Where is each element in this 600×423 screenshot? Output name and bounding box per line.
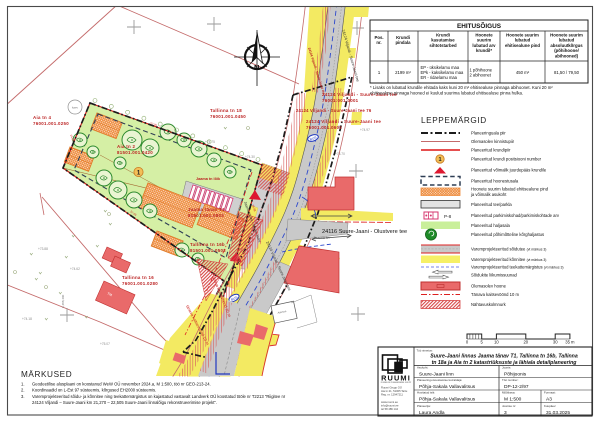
svg-text:ja võimalik asukoht: ja võimalik asukoht (470, 192, 507, 197)
svg-text:* Lisaks on lubatud krundile e: * Lisaks on lubatud krundile ehitada kak… (370, 85, 553, 90)
svg-text:Planeeritud krundi positsiooni: Planeeritud krundi positsiooni number (471, 157, 542, 162)
svg-text:Olemasolev kinnistupiir: Olemasolev kinnistupiir (471, 139, 515, 144)
svg-text:Sõidukite liikumissuunad: Sõidukite liikumissuunad (471, 273, 518, 278)
svg-text:A3: A3 (546, 397, 552, 403)
svg-text:Geodeetilise alusplaani on koo: Geodeetilise alusplaani on koostanud WeW… (32, 382, 211, 387)
svg-text:P-8: P-8 (444, 214, 452, 219)
svg-text:76001.001.0602: 76001.001.0602 (306, 125, 342, 130)
svg-text:Aia tn 2: Aia tn 2 (117, 144, 136, 149)
svg-text:76001.001.0250: 76001.001.0250 (33, 121, 69, 126)
svg-text:Tallinna tn 16: Tallinna tn 16 (122, 275, 154, 280)
svg-text:kaev: kaev (72, 106, 79, 110)
svg-text:Aia tn 4: Aia tn 4 (33, 115, 52, 120)
svg-text:DP-12-2/97: DP-12-2/97 (504, 384, 529, 390)
svg-text:24124 Viljandi - Suure-Jaani t: 24124 Viljandi - Suure-Jaani tee 76 (296, 108, 372, 113)
svg-text:76001.001.0280: 76001.001.0280 (122, 281, 158, 286)
svg-text:Joonis:: Joonis: (502, 366, 511, 370)
svg-text:Varemprojekteeritud teekattemä: Varemprojekteeritud teekattemärgistus (v… (471, 265, 564, 270)
svg-text:Nähtavuskolmnurk: Nähtavuskolmnurk (471, 302, 507, 307)
svg-text:MÄRKUSED: MÄRKUSED (21, 369, 72, 379)
svg-text:+74.97: +74.97 (360, 128, 370, 132)
svg-text:tel 58 486 144: tel 58 486 144 (381, 407, 399, 411)
svg-text:6,488,400: 6,488,400 (61, 294, 65, 308)
svg-text:Jaama tänav T1: Jaama tänav T1 (188, 207, 225, 212)
svg-text:Töö number:: Töö number: (502, 378, 519, 382)
svg-text:Planeerija:: Planeerija: (417, 404, 431, 408)
svg-text:3.: 3. (21, 394, 25, 399)
svg-text:+74.62: +74.62 (70, 267, 80, 271)
svg-text:Mõõtkava:: Mõõtkava: (502, 391, 516, 395)
svg-text:Planeeritud parkimiskohad/park: Planeeritud parkimiskohad/parkimiskohtad… (471, 213, 560, 218)
svg-text:2 abihoonet: 2 abihoonet (470, 73, 492, 78)
svg-text:Jaama tn: Jaama tn (313, 235, 329, 240)
svg-text:Formaat:: Formaat: (544, 391, 556, 395)
svg-text:30: 30 (553, 340, 558, 345)
svg-text:Asukoht:: Asukoht: (417, 366, 428, 370)
svg-text:M 1:500: M 1:500 (504, 397, 522, 403)
svg-text:450 m²: 450 m² (516, 70, 530, 75)
svg-text:Laura Andla: Laura Andla (419, 410, 445, 416)
svg-text:+73.88: +73.88 (38, 247, 48, 251)
svg-text:RUUMILISE PLANEERIMISE GRUPP: RUUMILISE PLANEERIMISE GRUPP (381, 381, 412, 384)
svg-text:35 m: 35 m (565, 340, 575, 345)
svg-text:Suure-Jaani linnas Jaama tänav: Suure-Jaani linnas Jaama tänav T1, Talli… (430, 354, 578, 360)
svg-text:ER - ridaelamu maa: ER - ridaelamu maa (421, 75, 458, 80)
svg-text:sihtotstarbed: sihtotstarbed (429, 43, 457, 48)
svg-text:Planeeritud hoonestusala: Planeeritud hoonestusala (471, 178, 519, 183)
svg-text:10: 10 (494, 340, 499, 345)
svg-text:1.: 1. (21, 382, 25, 387)
svg-text:Planeeritud krundipiir: Planeeritud krundipiir (471, 148, 511, 153)
svg-text:Planeeritud tee/parkla: Planeeritud tee/parkla (471, 202, 512, 207)
svg-text:Varemprojekteeritud sõidutee (: Varemprojekteeritud sõidutee (vt märkus … (471, 247, 546, 252)
svg-text:Planeeritud haljasala: Planeeritud haljasala (471, 223, 511, 228)
svg-text:Tänava kaitsevöönd 10 m: Tänava kaitsevöönd 10 m (471, 292, 519, 297)
svg-text:Varemprojekteeritud kõnnitee (: Varemprojekteeritud kõnnitee (vt märkus … (471, 257, 546, 262)
svg-text:+74.30: +74.30 (245, 155, 255, 159)
svg-text:Varemprojekteeritud sõidu- ja: Varemprojekteeritud sõidu- ja kõnnitee n… (32, 394, 286, 399)
svg-text:Suure-Jaani linn: Suure-Jaani linn (419, 372, 454, 378)
svg-text:+75.07: +75.07 (100, 342, 110, 346)
svg-text:Olemasolev hoone: Olemasolev hoone (471, 284, 507, 289)
svg-text:2.: 2. (21, 388, 25, 393)
svg-text:3: 3 (504, 410, 507, 416)
svg-text:24124 Viljandi – Suure-Jaani k: 24124 Viljandi – Suure-Jaani km 21,270 –… (32, 400, 217, 405)
svg-text:ehitisealune pind: ehitisealune pind (505, 43, 540, 48)
svg-text:81501.001.0803: 81501.001.0803 (188, 213, 224, 218)
svg-text:info@ruumi.ee: info@ruumi.ee (381, 404, 399, 408)
svg-text:ehitisealuse pinnaga hooned ei: ehitisealuse pinnaga hooned ei kuulud su… (370, 91, 523, 96)
svg-text:Planeeringuala piir: Planeeringuala piir (471, 131, 506, 136)
svg-text:abihooned): abihooned) (555, 53, 579, 58)
svg-text:1: 1 (378, 70, 381, 75)
svg-text:Tallinna tn 16b: Tallinna tn 16b (190, 242, 225, 247)
svg-text:Tallinna tn 18: Tallinna tn 18 (210, 108, 242, 113)
svg-text:Jaama tn lõik: Jaama tn lõik (196, 177, 221, 181)
svg-text:www.ruumi.ee: www.ruumi.ee (381, 400, 398, 404)
svg-text:Töö nimetus:: Töö nimetus: (417, 349, 433, 353)
svg-text:76001.001.0450: 76001.001.0450 (210, 114, 246, 119)
svg-text:pindala: pindala (395, 40, 411, 45)
svg-text:Planeeringu koostamise korrald: Planeeringu koostamise korraldaja: (417, 378, 462, 382)
svg-text:Huvitatud isik:: Huvitatud isik: (417, 391, 435, 395)
svg-text:Põhja-Sakala Vallavalitsus: Põhja-Sakala Vallavalitsus (419, 397, 476, 403)
svg-text:Planeeritud põhimõtteline kõrg: Planeeritud põhimõtteline kõrghaljastus (471, 232, 544, 237)
svg-text:24124 Viljandi - Suure-Jaani t: 24124 Viljandi - Suure-Jaani tee (306, 119, 381, 124)
svg-text:Planeeritud võimalik juurdepää: Planeeritud võimalik juurdepääs krundile (471, 168, 547, 173)
svg-text:Joonise nr:: Joonise nr: (502, 404, 516, 408)
svg-text:krundil*: krundil* (476, 48, 492, 53)
svg-text:Aia tn 21, 51005 Tartu: Aia tn 21, 51005 Tartu (381, 389, 408, 393)
svg-text:1: 1 (438, 157, 441, 163)
svg-text:Koordinaadid on L-Est 97 süste: Koordinaadid on L-Est 97 süsteemis, kõrg… (32, 388, 156, 393)
svg-text:LEPPEMÄRGID: LEPPEMÄRGID (421, 115, 487, 125)
svg-text:+73.70: +73.70 (335, 152, 345, 156)
svg-text:24116 Suure-Jaani - Olustvere: 24116 Suure-Jaani - Olustvere tee (322, 229, 407, 235)
svg-text:81501.001.0502: 81501.001.0502 (190, 248, 226, 253)
svg-text:Ruumi Grupp OÜ: Ruumi Grupp OÜ (381, 386, 402, 390)
svg-text:81501.001.0420: 81501.001.0420 (117, 150, 153, 155)
svg-text:N: N (254, 63, 259, 72)
svg-text:Reg. nr. 12947211: Reg. nr. 12947211 (381, 393, 403, 397)
svg-text:Põhijoonis: Põhijoonis (504, 372, 527, 378)
svg-text:20: 20 (523, 340, 528, 345)
svg-text:EHITUSÕIGUS: EHITUSÕIGUS (457, 21, 502, 30)
svg-text:31.03.2025: 31.03.2025 (546, 410, 570, 416)
svg-text:81,50 / 79,50: 81,50 / 79,50 (554, 70, 580, 75)
svg-text:+74.18: +74.18 (22, 317, 32, 321)
svg-text:nr.: nr. (376, 40, 381, 45)
svg-text:Põhja-Sakala Vallavalitsus: Põhja-Sakala Vallavalitsus (419, 384, 476, 390)
svg-text:2199 m²: 2199 m² (395, 70, 411, 75)
svg-text:Kuupäev:: Kuupäev: (544, 404, 556, 408)
svg-text:76001:001:0001: 76001:001:0001 (322, 98, 359, 103)
